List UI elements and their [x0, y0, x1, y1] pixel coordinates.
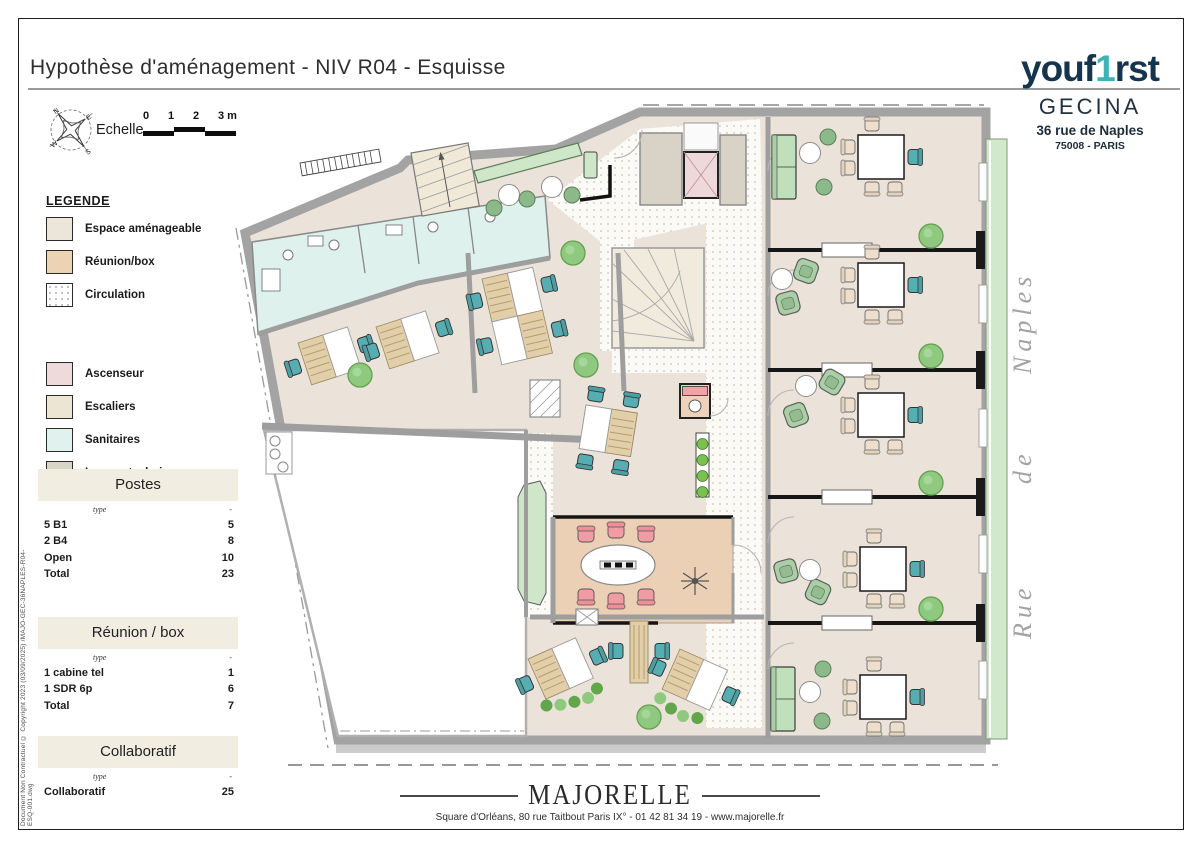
- stair-strip: [300, 149, 381, 176]
- legend: LEGENDE Espace aménageable Réunion/box C…: [46, 194, 236, 485]
- table-postes: Postes type- 5 B15 2 B48 Open10 Total23: [38, 469, 238, 580]
- meeting-room: [553, 517, 761, 623]
- client-name: GECINA: [1000, 94, 1180, 120]
- logo-part2: rst: [1115, 48, 1159, 89]
- compass-s: S: [85, 148, 93, 157]
- compass-w: W: [50, 140, 60, 150]
- legend-item-label: Réunion/box: [85, 256, 155, 268]
- stair-secondary: [411, 143, 479, 216]
- floor-plan: [228, 103, 1010, 779]
- table-row: 1 cabine tel1: [44, 667, 234, 679]
- stair-main: [612, 248, 704, 348]
- legend-item: Ascenseur: [46, 362, 236, 386]
- swatch-circulation: [46, 283, 73, 307]
- legend-item-label: Ascenseur: [85, 368, 144, 380]
- table-collaboratif: Collaboratif type- Collaboratif25: [38, 736, 238, 798]
- scale-tick-1: 1: [168, 110, 193, 122]
- table-row: Total23: [44, 568, 234, 580]
- table-collaboratif-title: Collaboratif: [38, 736, 238, 768]
- local-technique: [720, 135, 746, 205]
- legend-item-label: Sanitaires: [85, 434, 140, 446]
- table-row: 2 B48: [44, 535, 234, 547]
- document-side-note: Document Non Contractuel © Copyright 202…: [20, 534, 34, 826]
- legend-item-label: Circulation: [85, 289, 145, 301]
- legend-item-label: Espace aménageable: [85, 223, 201, 235]
- architect-address: Square d'Orléans, 80 rue Taitbout Paris …: [400, 812, 820, 823]
- swatch-reunion-box: [46, 250, 73, 274]
- legend-item: Escaliers: [46, 395, 236, 419]
- logo-part1: youf: [1021, 48, 1095, 89]
- local-technique: [640, 133, 682, 205]
- legend-item: Réunion/box: [46, 250, 236, 274]
- legend-item: Espace aménageable: [46, 217, 236, 241]
- youfirst-logo: youf1rst: [995, 48, 1185, 90]
- terrace-planter: [518, 481, 546, 605]
- table-row: Open10: [44, 552, 234, 564]
- logo-accent: 1: [1095, 48, 1115, 89]
- shaft-hatch: [530, 380, 560, 417]
- legend-item-label: Escaliers: [85, 401, 136, 413]
- swatch-espace-amenageable: [46, 217, 73, 241]
- scale-tick-2: 2: [193, 110, 218, 122]
- door-marker: [576, 609, 598, 625]
- col-type: type: [93, 772, 106, 781]
- table-reunion-title: Réunion / box: [38, 617, 238, 649]
- drawing-sheet: Hypothèse d'aménagement - NIV R04 - Esqu…: [0, 0, 1200, 846]
- architect-brand: MAJORELLE: [518, 780, 702, 811]
- page-title: Hypothèse d'aménagement - NIV R04 - Esqu…: [30, 56, 506, 80]
- client-address-line1: 36 rue de Naples: [1000, 123, 1180, 138]
- street-label-de: de: [1008, 432, 1044, 502]
- street-label-naples: Naples: [1008, 228, 1044, 418]
- elevator-core: [640, 123, 746, 205]
- client-address-line2: 75008 - PARIS: [1000, 140, 1180, 152]
- footer: MAJORELLE Square d'Orléans, 80 rue Taitb…: [400, 782, 820, 823]
- col-type: type: [93, 653, 106, 662]
- compass-rose-icon: N E S W: [42, 100, 100, 162]
- balcony-strip: [986, 139, 1007, 739]
- scale-label: Echelle: [96, 122, 144, 138]
- scale-tick-0: 0: [143, 110, 168, 122]
- table-row: 1 SDR 6p6: [44, 683, 234, 695]
- legend-title: LEGENDE: [46, 194, 236, 208]
- col-type: type: [93, 505, 106, 514]
- table-reunion-box: Réunion / box type- 1 cabine tel1 1 SDR …: [38, 617, 238, 712]
- table-row: Total7: [44, 700, 234, 712]
- planter: [696, 433, 709, 498]
- client-block: GECINA 36 rue de Naples 75008 - PARIS: [1000, 94, 1180, 152]
- table-row: 5 B15: [44, 519, 234, 531]
- swatch-escaliers: [46, 395, 73, 419]
- swatch-sanitaires: [46, 428, 73, 452]
- legend-item: Circulation: [46, 283, 236, 307]
- swatch-ascenseur: [46, 362, 73, 386]
- street-label-rue: Rue: [1008, 556, 1044, 666]
- compass-e: E: [85, 113, 93, 122]
- legend-item: Sanitaires: [46, 428, 236, 452]
- table-postes-title: Postes: [38, 469, 238, 501]
- courtyard: [264, 430, 526, 736]
- table-row: Collaboratif25: [44, 786, 234, 798]
